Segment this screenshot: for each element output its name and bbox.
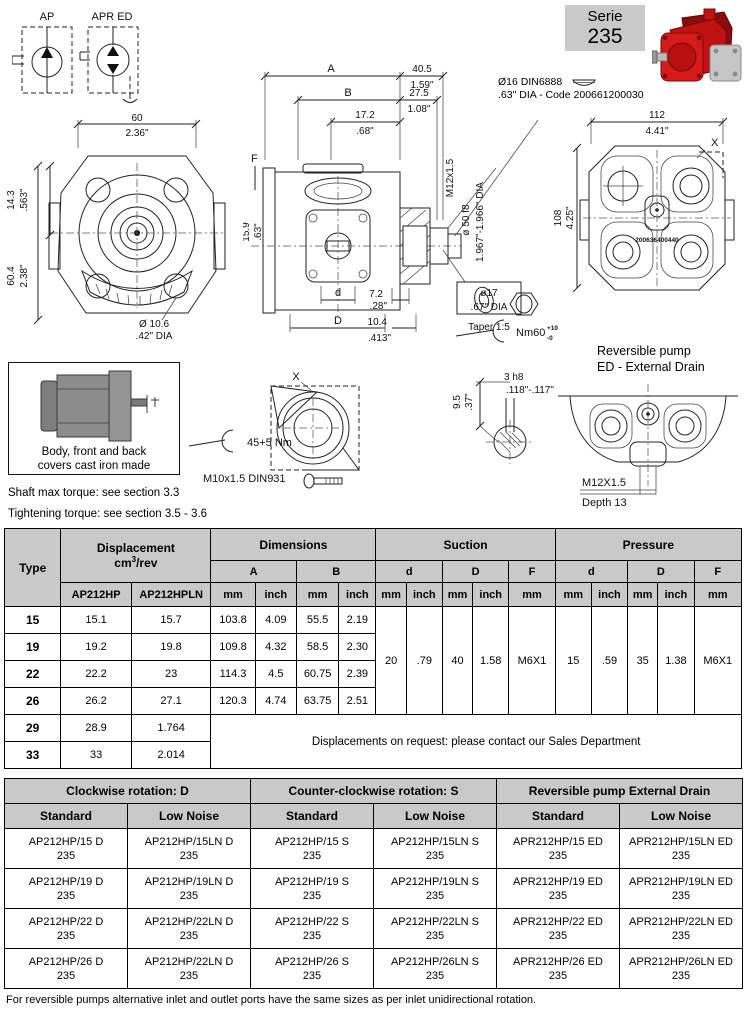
unit-mm: mm xyxy=(442,583,472,607)
model-cell: AP212HP/19LN S235 xyxy=(374,869,497,909)
dim-72-mm: 7.2 xyxy=(369,289,383,300)
dim-72-in: .28" xyxy=(370,301,388,312)
front-hole-dia-in: .42" DIA xyxy=(136,331,173,340)
front-height-in: 2.38" xyxy=(19,264,30,287)
woodruff-key-callout: Ø16 DIN6888 .63" DIA - Code 200661200030 xyxy=(498,76,744,102)
cell: 33 xyxy=(61,742,131,769)
model-code: AP212HP/26 D xyxy=(5,955,127,969)
drain-depth-label: Depth 13 xyxy=(582,497,627,509)
model-cell: APR212HP/26 ED235 xyxy=(497,949,620,989)
rear-x-callout: X xyxy=(711,137,719,149)
hydraulic-symbols-drawing: AP APR ED xyxy=(12,6,152,108)
col-pressure-F: F xyxy=(694,561,741,583)
cell: 2.30 xyxy=(339,634,376,661)
dim-159-mm: 15.9 xyxy=(243,222,252,242)
dim-A-label: A xyxy=(327,63,335,75)
unit-mm: mm xyxy=(628,583,658,607)
key-depth-mm: 9.5 xyxy=(452,395,463,409)
model-cell: AP212HP/19 D235 xyxy=(5,869,128,909)
cell: 4.32 xyxy=(255,634,296,661)
front-height-mm: 60.4 xyxy=(6,266,17,286)
nut-torque-upper-tol: +10 xyxy=(547,325,558,332)
model-serie: 235 xyxy=(374,889,496,903)
cell: 23 xyxy=(131,661,211,688)
unit-inch: inch xyxy=(658,583,694,607)
cell-suction-D-in: 1.58 xyxy=(473,607,509,715)
model-code: APR212HP/19LN ED xyxy=(620,875,742,889)
cell-type: 19 xyxy=(5,634,61,661)
cell-suction-F: M6X1 xyxy=(509,607,555,715)
cell: 2.51 xyxy=(339,688,376,715)
model-code: AP212HP/26 S xyxy=(251,955,373,969)
model-cell: AP212HP/26LN S235 xyxy=(374,949,497,989)
front-offset-mm: 14.3 xyxy=(6,190,17,210)
model-cell: APR212HP/22 ED235 xyxy=(497,909,620,949)
model-serie: 235 xyxy=(497,969,619,983)
dim-D-label: D xyxy=(334,315,342,327)
unit-mm: mm xyxy=(694,583,741,607)
cell-pressure-F: M6X1 xyxy=(694,607,741,715)
model-code: AP212HP/19 S xyxy=(251,875,373,889)
col-ap212hp: AP212HP xyxy=(61,583,131,607)
cell: 4.09 xyxy=(255,607,296,634)
pilot-dia-in-label: 1.967"-1.966" DIA xyxy=(475,182,486,262)
serie-badge: Serie 235 xyxy=(565,5,645,51)
col-dimensions: Dimensions xyxy=(211,529,376,561)
unit-inch: inch xyxy=(406,583,442,607)
model-code: APR212HP/15LN ED xyxy=(620,835,742,849)
model-cell: APR212HP/19 ED235 xyxy=(497,869,620,909)
model-code: AP212HP/22LN D xyxy=(128,915,250,929)
cell: 22.2 xyxy=(61,661,131,688)
cell: 19.8 xyxy=(131,634,211,661)
sub-standard: Standard xyxy=(497,804,620,829)
model-cell: APR212HP/15LN ED235 xyxy=(620,829,743,869)
model-serie: 235 xyxy=(5,849,127,863)
unit-mm: mm xyxy=(296,583,338,607)
col-suction-F: F xyxy=(509,561,555,583)
col-pressure: Pressure xyxy=(555,529,741,561)
model-cell: AP212HP/15LN S235 xyxy=(374,829,497,869)
model-serie: 235 xyxy=(374,929,496,943)
dim-159-in: .63" xyxy=(253,223,264,241)
model-serie: 235 xyxy=(128,969,250,983)
cell: 114.3 xyxy=(211,661,255,688)
displacement-label: Displacement xyxy=(97,541,175,555)
key-slot-detail-drawing: 9.5 .37" 3 h8 .118"-.117" xyxy=(418,370,558,470)
nut-torque-label: Nm60 xyxy=(516,327,545,339)
model-code: AP212HP/22LN S xyxy=(374,915,496,929)
model-code: APR212HP/19 ED xyxy=(497,875,619,889)
model-serie: 235 xyxy=(497,889,619,903)
cell-pressure-d-mm: 15 xyxy=(555,607,591,715)
cell: 28.9 xyxy=(61,715,131,742)
shaft-torque-note: Shaft max torque: see section 3.3 xyxy=(8,483,207,504)
footer-note: For reversible pumps alternative inlet a… xyxy=(6,994,536,1006)
x-detail-label: X xyxy=(292,371,300,383)
cell: 19.2 xyxy=(61,634,131,661)
group-counter-clockwise: Counter-clockwise rotation: S xyxy=(251,779,497,804)
col-suction: Suction xyxy=(376,529,555,561)
flange-torque-label: 45+5 Nm xyxy=(247,437,292,449)
model-code: AP212HP/19 D xyxy=(5,875,127,889)
key-depth-in: .37" xyxy=(464,393,475,411)
table-row: AP212HP/22 D235 AP212HP/22LN D235 AP212H… xyxy=(5,909,743,949)
model-cell: AP212HP/26 S235 xyxy=(251,949,374,989)
shaft-thread-label: M12x1.5 xyxy=(445,158,456,197)
displacement-unit: cm xyxy=(114,556,131,570)
dim-275-mm: 27.5 xyxy=(409,88,429,99)
model-serie: 235 xyxy=(251,889,373,903)
model-code: AP212HP/19LN S xyxy=(374,875,496,889)
cell-pressure-D-in: 1.38 xyxy=(658,607,694,715)
model-cell: AP212HP/22LN D235 xyxy=(128,949,251,989)
main-table-header: Type Displacement cm3/rev Dimensions Suc… xyxy=(5,529,742,607)
unit-mm: mm xyxy=(509,583,555,607)
cell-suction-d-mm: 20 xyxy=(376,607,406,715)
dim-275-in: 1.08" xyxy=(407,104,430,115)
bolt-icon xyxy=(304,474,342,488)
dim-B-label: B xyxy=(344,87,351,99)
drain-thread-label: M12X1.5 xyxy=(582,477,626,489)
torque-notes: Shaft max torque: see section 3.3 Tighte… xyxy=(8,483,207,525)
model-serie: 235 xyxy=(497,849,619,863)
model-cell: AP212HP/19 S235 xyxy=(251,869,374,909)
cell-type: 22 xyxy=(5,661,61,688)
front-width-in: 2.36" xyxy=(125,128,148,139)
model-serie: 235 xyxy=(620,889,742,903)
model-serie: 235 xyxy=(374,969,496,983)
unit-inch: inch xyxy=(591,583,627,607)
model-code: AP212HP/26LN S xyxy=(374,955,496,969)
reversible-title-line1: Reversible pump xyxy=(597,343,705,359)
model-code: AP212HP/19LN D xyxy=(128,875,250,889)
reversible-bottom-view-drawing: M12X1.5 Depth 13 xyxy=(556,382,740,520)
reversible-title-line2: ED - External Drain xyxy=(597,359,705,375)
rear-height-in: 4.25" xyxy=(565,206,576,229)
dim-405-mm: 40.5 xyxy=(412,64,432,75)
model-code: AP212HP/22 S xyxy=(251,915,373,929)
col-pressure-D: D xyxy=(628,561,694,583)
model-code: APR212HP/22LN ED xyxy=(620,915,742,929)
model-code: APR212HP/26 ED xyxy=(497,955,619,969)
cell: 60.75 xyxy=(296,661,338,688)
model-cell: AP212HP/15LN D235 xyxy=(128,829,251,869)
table-row: AP212HP/26 D235 AP212HP/22LN D235 AP212H… xyxy=(5,949,743,989)
front-hole-dia: Ø 10.6 xyxy=(139,319,169,330)
unit-inch: inch xyxy=(339,583,376,607)
dim-104-mm: 10.4 xyxy=(368,317,388,328)
cell-type: 26 xyxy=(5,688,61,715)
cell: 15.7 xyxy=(131,607,211,634)
model-cell: APR212HP/19LN ED235 xyxy=(620,869,743,909)
col-suction-d: d xyxy=(376,561,442,583)
dim-104-in: .413" xyxy=(368,333,391,344)
unit-mm: mm xyxy=(211,583,255,607)
model-serie: 235 xyxy=(128,889,250,903)
group-reversible: Reversible pump External Drain xyxy=(497,779,743,804)
cell-suction-D-mm: 40 xyxy=(442,607,472,715)
model-code: AP212HP/15 S xyxy=(251,835,373,849)
model-code: APR212HP/15 ED xyxy=(497,835,619,849)
model-cell: AP212HP/19LN D235 xyxy=(128,869,251,909)
model-serie: 235 xyxy=(5,889,127,903)
model-serie: 235 xyxy=(620,929,742,943)
sub-low-noise: Low Noise xyxy=(374,804,497,829)
table-row: 15 15.1 15.7 103.8 4.09 55.5 2.19 20 .79… xyxy=(5,607,742,634)
ordering-table: Clockwise rotation: D Counter-clockwise … xyxy=(4,778,743,989)
col-ap212hpln: AP212HPLN xyxy=(131,583,211,607)
unit-mm: mm xyxy=(555,583,591,607)
rear-height-mm: 108 xyxy=(553,209,564,226)
model-cell: AP212HP/22LN D235 xyxy=(128,909,251,949)
cell: 63.75 xyxy=(296,688,338,715)
cell-type: 29 xyxy=(5,715,61,742)
flange-bolt-label: M10x1.5 DIN931 xyxy=(203,473,286,485)
cell: 55.5 xyxy=(296,607,338,634)
cell: 1.764 xyxy=(131,715,211,742)
model-serie: 235 xyxy=(497,929,619,943)
pump-silhouette-icon xyxy=(19,367,169,443)
cell: 15.1 xyxy=(61,607,131,634)
col-type: Type xyxy=(5,529,61,607)
tightening-torque-note: Tightening torque: see section 3.5 - 3.6 xyxy=(8,504,207,525)
model-code: AP212HP/15LN S xyxy=(374,835,496,849)
col-suction-D: D xyxy=(442,561,508,583)
model-code: APR212HP/26LN ED xyxy=(620,955,742,969)
table-row: AP212HP/15 D235 AP212HP/15LN D235 AP212H… xyxy=(5,829,743,869)
model-serie: 235 xyxy=(251,969,373,983)
ap-symbol-label: AP xyxy=(40,11,55,23)
unit-mm: mm xyxy=(376,583,406,607)
woodruff-key-icon xyxy=(571,77,597,88)
material-note-line2: covers cast iron made xyxy=(9,459,179,473)
model-serie: 235 xyxy=(374,849,496,863)
sub-low-noise: Low Noise xyxy=(620,804,743,829)
rear-width-mm: 112 xyxy=(649,110,665,121)
col-dim-B: B xyxy=(296,561,376,583)
displacements-note: Displacements on request: please contact… xyxy=(211,715,742,769)
cell-type: 33 xyxy=(5,742,61,769)
key-width-label: 3 h8 xyxy=(504,372,524,383)
cell: 26.2 xyxy=(61,688,131,715)
col-pressure-d: d xyxy=(555,561,627,583)
pilot-dia-label: ø 50 f8 xyxy=(461,204,472,236)
ordering-table-header: Clockwise rotation: D Counter-clockwise … xyxy=(5,779,743,829)
model-serie: 235 xyxy=(5,929,127,943)
group-clockwise: Clockwise rotation: D xyxy=(5,779,251,804)
model-cell: AP212HP/15 D235 xyxy=(5,829,128,869)
model-serie: 235 xyxy=(620,969,742,983)
cell: 27.1 xyxy=(131,688,211,715)
apr-ed-symbol-label: APR ED xyxy=(92,11,133,23)
unit-inch: inch xyxy=(473,583,509,607)
rear-view-drawing: 112 4.41" X 108 4.25" 200636400440 xyxy=(553,100,744,296)
cell-pressure-d-in: .59 xyxy=(591,607,627,715)
dim-172-in: .68" xyxy=(356,126,374,137)
unit-inch: inch xyxy=(255,583,296,607)
key-size-label: Ø16 DIN6888 xyxy=(498,76,562,88)
front-width-mm: 60 xyxy=(131,113,143,124)
model-cell: AP212HP/22LN S235 xyxy=(374,909,497,949)
model-code: AP212HP/22 D xyxy=(5,915,127,929)
cell: 2.39 xyxy=(339,661,376,688)
cell-suction-d-in: .79 xyxy=(406,607,442,715)
model-serie: 235 xyxy=(128,849,250,863)
front-view-drawing: 60 2.36" 14.3 .563" 60.4 2.38" Ø 10.6 .4… xyxy=(4,108,244,340)
cell-pressure-D-mm: 35 xyxy=(628,607,658,715)
cell: 4.5 xyxy=(255,661,296,688)
model-serie: 235 xyxy=(251,849,373,863)
model-cell: APR212HP/15 ED235 xyxy=(497,829,620,869)
front-offset-in: .563" xyxy=(19,188,30,211)
model-cell: APR212HP/26LN ED235 xyxy=(620,949,743,989)
datasheet-page: { "symbols": {"ap": "AP", "apr": "APR ED… xyxy=(0,0,744,1014)
reversible-pump-title: Reversible pump ED - External Drain xyxy=(597,343,705,375)
material-note-line1: Body, front and back xyxy=(9,445,179,459)
cell: 2.014 xyxy=(131,742,211,769)
cell: 109.8 xyxy=(211,634,255,661)
serie-label: Serie xyxy=(565,8,645,25)
dim-d-label: d xyxy=(335,287,341,299)
model-cell: AP212HP/22 D235 xyxy=(5,909,128,949)
model-serie: 235 xyxy=(128,929,250,943)
dim-F-label: F xyxy=(251,153,258,165)
rear-width-in: 4.41" xyxy=(645,126,668,137)
model-cell: AP212HP/26 D235 xyxy=(5,949,128,989)
model-code: AP212HP/22LN D xyxy=(128,955,250,969)
key-width-in: .118"-.117" xyxy=(506,385,554,396)
model-code: APR212HP/22 ED xyxy=(497,915,619,929)
sub-low-noise: Low Noise xyxy=(128,804,251,829)
table-row: 29 28.9 1.764 Displacements on request: … xyxy=(5,715,742,742)
cell: 103.8 xyxy=(211,607,255,634)
model-serie: 235 xyxy=(5,969,127,983)
model-cell: AP212HP/22 S235 xyxy=(251,909,374,949)
main-table: Type Displacement cm3/rev Dimensions Suc… xyxy=(4,528,742,769)
model-code: AP212HP/15 D xyxy=(5,835,127,849)
col-displacement: Displacement cm3/rev xyxy=(61,529,211,583)
sub-standard: Standard xyxy=(5,804,128,829)
model-cell: AP212HP/15 S235 xyxy=(251,829,374,869)
col-dim-A: A xyxy=(211,561,297,583)
model-serie: 235 xyxy=(251,929,373,943)
displacement-unit-suffix: /rev xyxy=(136,556,157,570)
model-serie: 235 xyxy=(620,849,742,863)
cell: 58.5 xyxy=(296,634,338,661)
material-note-box: Body, front and back covers cast iron ma… xyxy=(8,362,180,475)
x-detail-drawing: X 45+5 Nm M10x1.5 DIN931 xyxy=(183,370,383,492)
model-code: AP212HP/15LN D xyxy=(128,835,250,849)
cell-type: 15 xyxy=(5,607,61,634)
model-cell: APR212HP/22LN ED235 xyxy=(620,909,743,949)
nut-torque-lower-tol: -0 xyxy=(547,335,553,342)
sub-standard: Standard xyxy=(251,804,374,829)
cell: 4.74 xyxy=(255,688,296,715)
serie-number: 235 xyxy=(565,25,645,49)
cell: 2.19 xyxy=(339,607,376,634)
dim-172-mm: 17.2 xyxy=(355,110,375,121)
table-row: AP212HP/19 D235 AP212HP/19LN D235 AP212H… xyxy=(5,869,743,909)
cell: 120.3 xyxy=(211,688,255,715)
